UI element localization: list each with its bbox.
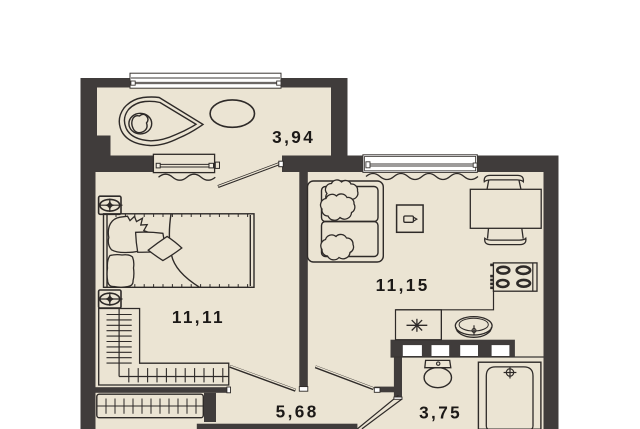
svg-text:11,15: 11,15	[376, 275, 430, 295]
svg-text:3,75: 3,75	[419, 402, 462, 422]
svg-text:5,68: 5,68	[276, 401, 319, 421]
svg-text:3,94: 3,94	[272, 127, 315, 147]
svg-text:11,11: 11,11	[172, 307, 225, 327]
